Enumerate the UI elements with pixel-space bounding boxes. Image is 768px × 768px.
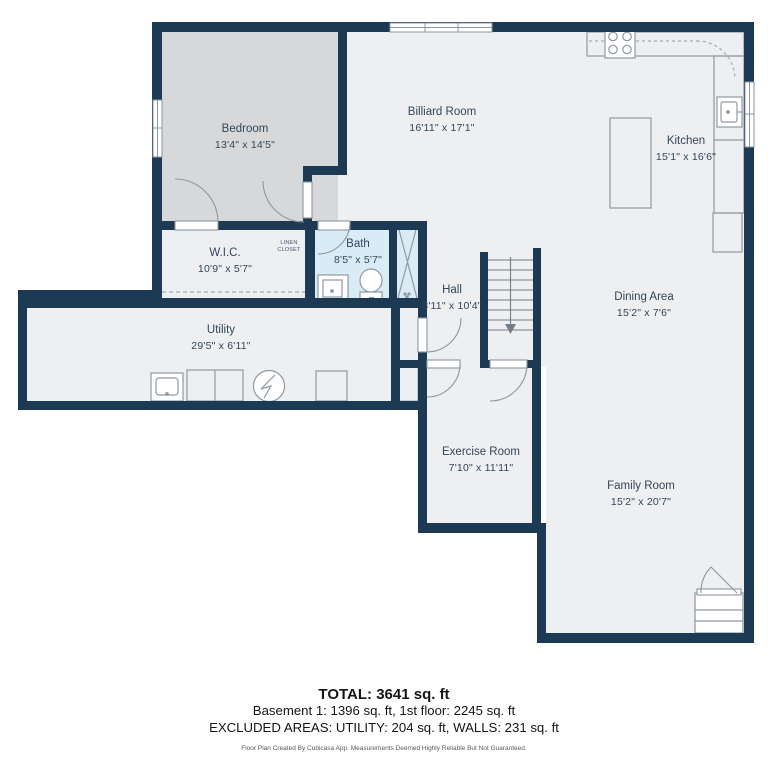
hall-utility-door-leaf [418, 318, 427, 352]
room-label-wic: W.I.C. 10'9" x 5'7" [198, 245, 252, 277]
sink-drain-icon [331, 290, 334, 293]
total-area: TOTAL: 3641 sq. ft [0, 686, 768, 703]
billiard-kitchen-floor [347, 32, 744, 367]
excluded-areas: EXCLUDED AREAS: UTILITY: 204 sq. ft, WAL… [0, 720, 768, 737]
sink-drain-icon [166, 393, 169, 396]
shower-head-icon [404, 293, 406, 295]
floorplan-drawing [0, 0, 768, 768]
stove [605, 28, 635, 58]
bedroom-door-leaf [303, 182, 312, 218]
room-label-family: Family Room 15'2" x 20'7" [607, 478, 675, 510]
room-label-exercise: Exercise Room 7'10" x 11'11" [442, 444, 520, 476]
room-label-bedroom: Bedroom 13'4" x 14'5" [215, 121, 275, 153]
floorplan-page: Bedroom 13'4" x 14'5" Billiard Room 16'1… [0, 0, 768, 768]
floor-areas: Basement 1: 1396 sq. ft, 1st floor: 2245… [0, 703, 768, 720]
shower-head-icon [408, 293, 410, 295]
stairs-door-leaf [490, 360, 527, 368]
exercise-door-leaf [427, 360, 460, 368]
wic-door-leaf [175, 221, 218, 230]
toilet-bowl [360, 269, 382, 292]
bath-door-leaf [318, 221, 350, 230]
disclaimer: Floor Plan Created By Cubicasa App. Meas… [0, 744, 768, 753]
sink-drain-icon [727, 111, 730, 114]
room-label-kitchen: Kitchen 15'1" x 16'6" [656, 133, 716, 165]
room-label-hall: Hall 3'11" x 10'4" [422, 282, 481, 314]
room-label-bath: Bath 8'5" x 5'7" [334, 236, 382, 268]
exterior-steps [695, 593, 743, 633]
shower-head-icon [406, 296, 408, 298]
footer: TOTAL: 3641 sq. ft Basement 1: 1396 sq. … [0, 686, 768, 753]
linen-closet-label: LINEN CLOSET [277, 240, 300, 254]
room-label-billiard: Billiard Room 16'11" x 17'1" [408, 104, 476, 136]
room-floors [27, 32, 744, 633]
room-label-utility: Utility 29'5" x 6'11" [191, 322, 250, 354]
mechanical-nook [397, 367, 418, 401]
room-label-dining: Dining Area 15'2" x 7'6" [614, 289, 673, 321]
